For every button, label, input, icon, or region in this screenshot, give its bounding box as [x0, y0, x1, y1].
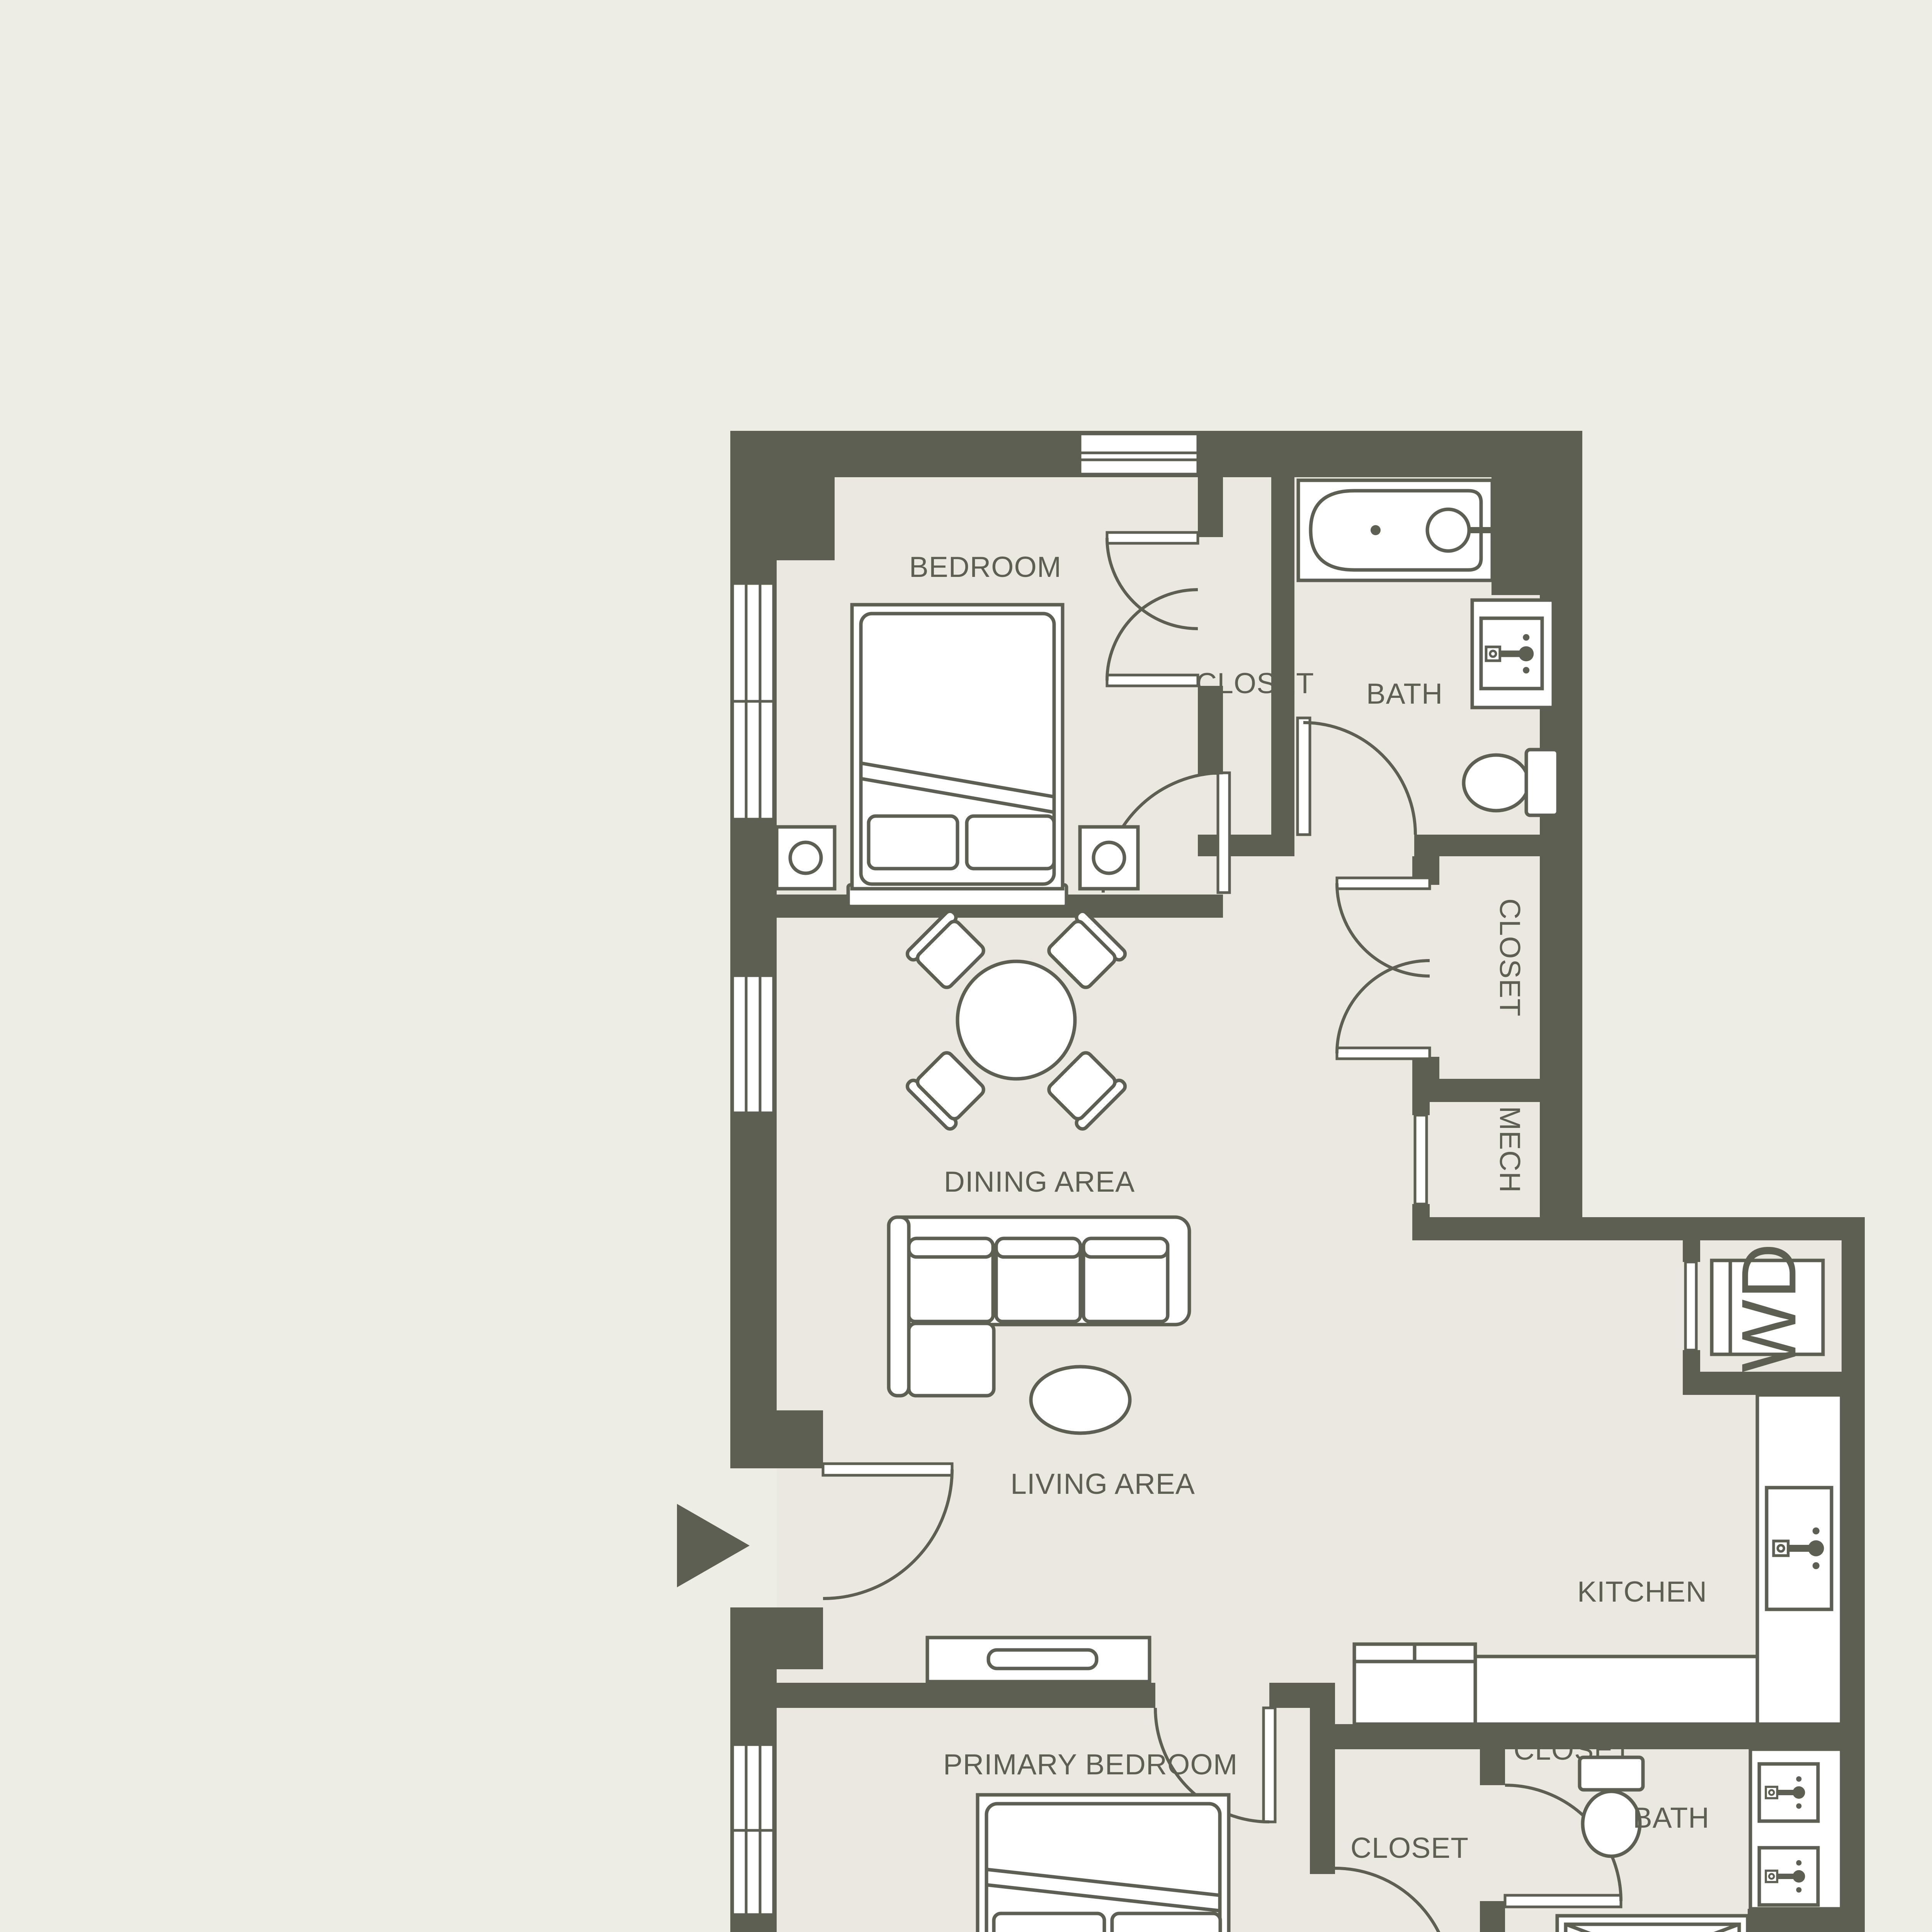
door-mech-panel — [1415, 1115, 1427, 1204]
wall-closet-jamb-top — [1198, 477, 1223, 537]
room-label-bath-top: BATH — [1366, 677, 1443, 710]
door-leaf — [1685, 1262, 1696, 1350]
kitchen-range — [1354, 1644, 1475, 1724]
wall-wd-jamb-top — [1683, 1240, 1700, 1262]
wall-right-outer — [1842, 1217, 1865, 1932]
entry-arrow-icon — [677, 1504, 750, 1587]
bed-pillow — [1112, 1913, 1220, 1932]
bed-pillow — [869, 816, 957, 869]
wall-bath-bottom — [1414, 835, 1540, 856]
wall-wd-jamb-bottom — [1683, 1350, 1700, 1372]
window-dining-left — [733, 976, 774, 1113]
wall-right-upper — [1540, 431, 1582, 1240]
window-icon — [733, 976, 774, 1113]
room-label-kitchen: KITCHEN — [1577, 1575, 1707, 1608]
nightstand — [777, 827, 835, 889]
room-label-primary-bedroom: PRIMARY BEDROOM — [943, 1748, 1238, 1781]
nightstand-bedroom-left — [777, 827, 835, 889]
wall-entry-pier-bottom — [777, 1607, 823, 1669]
wall-walkin-bath-divider-bottom — [1480, 1901, 1505, 1932]
door-leaf — [1337, 878, 1430, 889]
door-leaf — [1107, 675, 1198, 686]
room-label-bedroom: BEDROOM — [909, 551, 1062, 583]
kitchen-counter-right — [1757, 1395, 1842, 1724]
door-leaf — [823, 1464, 952, 1475]
door-leaf — [1415, 1115, 1427, 1204]
window-top — [1080, 434, 1198, 474]
door-leaf — [1264, 1708, 1275, 1822]
wall-entry-pier-top — [777, 1410, 823, 1468]
sofa-arm — [889, 1217, 909, 1396]
bed-pillow — [967, 816, 1054, 869]
room-label-bath-primary: BATH — [1633, 1801, 1709, 1834]
wall-mech-jamb-bottom — [1412, 1204, 1430, 1217]
wall-walkin-bath-divider-top — [1480, 1749, 1505, 1785]
bed-primary — [972, 1795, 1235, 1932]
media-console — [927, 1638, 1150, 1682]
wall-closet-mech-divider — [1412, 1079, 1540, 1102]
nightstand-bedroom-right — [1080, 827, 1138, 889]
tub-drain — [1371, 525, 1381, 535]
toilet-bowl — [1464, 755, 1529, 811]
kitchen-counter-bottom — [1475, 1656, 1757, 1724]
window-primary-left — [733, 1745, 774, 1915]
room-label-dining-area: DINING AREA — [944, 1165, 1135, 1198]
wall-bath-corner — [1492, 477, 1540, 595]
room-label-closet-hall: CLOSET — [1494, 898, 1526, 1017]
door-leaf — [1505, 1895, 1621, 1907]
toilet-tank — [1580, 1757, 1643, 1790]
floor-plan: CLOSET CLOSET — [0, 0, 1932, 1932]
toilet-bowl — [1583, 1791, 1640, 1856]
sofa-chaise — [909, 1323, 994, 1396]
wall-living-primary-right — [1269, 1683, 1310, 1708]
console-tv — [988, 1650, 1097, 1668]
wall-bath-corner-block — [1748, 1909, 1842, 1932]
bed-pillow — [994, 1913, 1104, 1932]
room-label-mech: MECH — [1494, 1106, 1526, 1193]
wall-living-primary-left — [777, 1683, 1155, 1708]
sofa-back-pillow — [996, 1238, 1080, 1257]
door-leaf — [1337, 1048, 1430, 1059]
wall-bath-left — [1271, 477, 1294, 835]
room-label-living-area: LIVING AREA — [1010, 1468, 1195, 1500]
room-label-closet-walkin: CLOSET — [1350, 1832, 1469, 1864]
vanity-bath-primary — [1750, 1749, 1842, 1909]
vanity-counter — [1750, 1749, 1842, 1909]
toilet-tank — [1526, 750, 1558, 815]
door-wd-panel — [1685, 1262, 1696, 1350]
sofa-back-pillow — [909, 1238, 993, 1257]
vanity-bath-top — [1472, 600, 1553, 707]
label-washer-dryer: WD — [1726, 1243, 1812, 1372]
wall-hall-band — [1198, 835, 1294, 856]
door-leaf — [1218, 773, 1230, 893]
wall-mech-wd — [1412, 1217, 1865, 1240]
wall-kitchen-bottom — [1310, 1724, 1842, 1749]
wall-closet-jamb-mid — [1198, 686, 1223, 775]
wall-mech-jamb-top — [1412, 1102, 1430, 1115]
door-leaf — [1298, 718, 1310, 835]
wall-pilaster — [777, 477, 835, 560]
coffee-table — [1031, 1367, 1130, 1433]
shower — [1557, 1916, 1748, 1932]
wall-hallcloset-jamb-bottom — [1412, 1057, 1439, 1079]
wall-walkin-left-upper — [1310, 1683, 1335, 1874]
wall-wd-bottom — [1683, 1372, 1842, 1395]
toilet-bath-top — [1464, 750, 1558, 815]
floor-plan-canvas: CLOSET CLOSET — [0, 0, 1932, 1932]
door-leaf — [1107, 532, 1198, 543]
bathtub — [1298, 480, 1505, 580]
sofa-back-pillow — [1083, 1238, 1168, 1257]
nightstand — [1080, 827, 1138, 889]
window-bedroom-left — [733, 583, 774, 819]
bed-bedroom — [848, 605, 1066, 906]
dining-table — [957, 961, 1075, 1079]
